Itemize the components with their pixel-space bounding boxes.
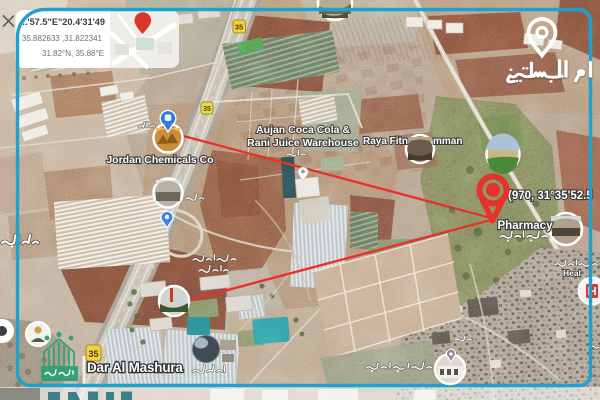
svg-text:(970, 31°35'52.5: (970, 31°35'52.5: [508, 190, 593, 202]
svg-text:...'57.5"E"20.4'31'49: ...'57.5"E"20.4'31'49: [20, 17, 105, 27]
svg-text:Aujan Coca Cola &: Aujan Coca Cola &: [256, 124, 350, 136]
svg-text:mman: mman: [433, 136, 462, 147]
svg-text:35.882633 ,31.822341: 35.882633 ,31.822341: [22, 34, 103, 43]
svg-text:Rani Juice Warehouse: Rani Juice Warehouse: [247, 137, 359, 149]
svg-text:Raya Fitn: Raya Fitn: [363, 136, 408, 147]
svg-text:Pharmacy: Pharmacy: [498, 220, 554, 232]
svg-text:35: 35: [235, 23, 243, 32]
svg-text:Jordan Chemicals Co: Jordan Chemicals Co: [106, 154, 213, 166]
svg-text:35: 35: [88, 349, 98, 359]
svg-text:Dar Al Mashura: Dar Al Mashura: [87, 360, 183, 375]
svg-text:31.82°N, 35.88°E: 31.82°N, 35.88°E: [42, 49, 104, 58]
svg-text:Heal: Heal: [563, 268, 581, 278]
svg-text:35: 35: [203, 106, 211, 113]
